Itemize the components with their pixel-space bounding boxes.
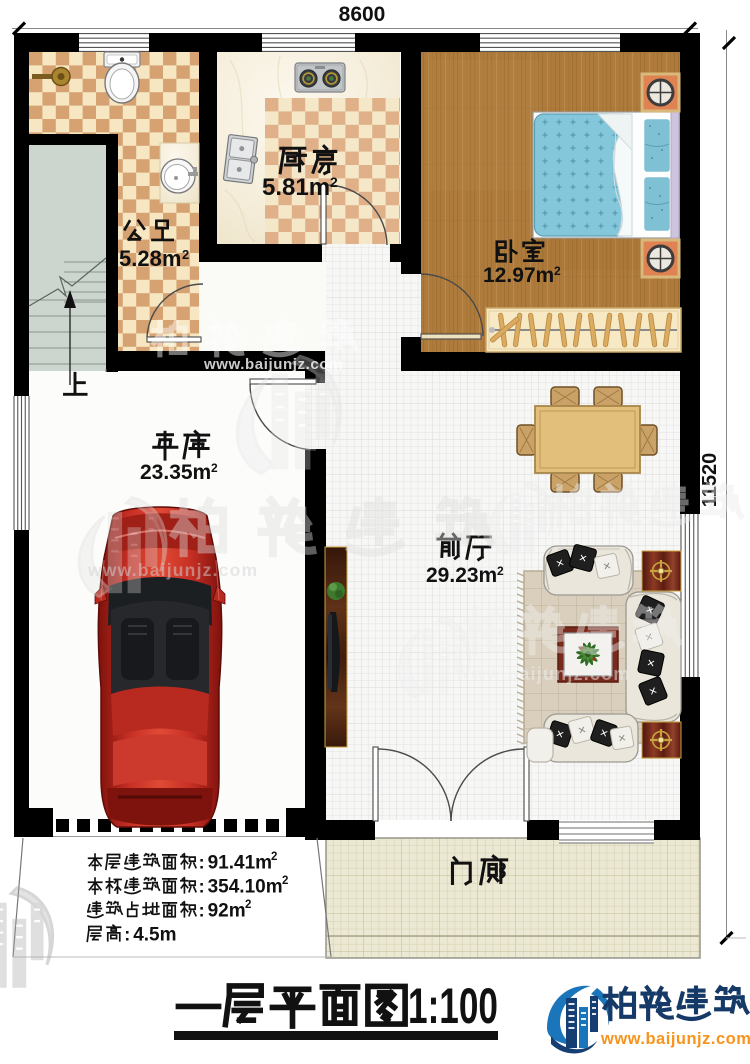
svg-text:2: 2 <box>211 461 218 475</box>
svg-text::: : <box>124 925 130 945</box>
svg-text:8600: 8600 <box>339 3 386 26</box>
svg-text:www.baijunjz.com: www.baijunjz.com <box>455 664 631 684</box>
svg-text:5.81m: 5.81m <box>262 174 330 201</box>
svg-text:5.28m: 5.28m <box>119 246 181 271</box>
svg-text:www.baijunjz.com: www.baijunjz.com <box>203 356 343 373</box>
svg-text:2: 2 <box>282 875 288 887</box>
svg-text:92m: 92m <box>208 901 246 922</box>
svg-text:www.baijunjz.com: www.baijunjz.com <box>600 1030 750 1048</box>
svg-text:2: 2 <box>182 247 189 262</box>
svg-text:354.10m: 354.10m <box>208 877 283 898</box>
svg-text::: : <box>199 853 205 873</box>
svg-text:2: 2 <box>330 174 338 190</box>
svg-text:1:100: 1:100 <box>408 978 498 1034</box>
svg-text:23.35m: 23.35m <box>140 461 211 484</box>
svg-text:2: 2 <box>497 564 504 578</box>
svg-text::: : <box>199 901 205 921</box>
svg-text:29.23m: 29.23m <box>426 564 497 587</box>
svg-text:91.41m: 91.41m <box>208 853 272 874</box>
svg-text:2: 2 <box>554 264 561 278</box>
svg-text::: : <box>199 877 205 897</box>
svg-text:www.baijunjz.com: www.baijunjz.com <box>87 560 258 580</box>
svg-text:2: 2 <box>271 851 277 863</box>
svg-text:4.5m: 4.5m <box>133 925 176 946</box>
svg-text:2: 2 <box>245 899 251 911</box>
svg-text:12.97m: 12.97m <box>483 264 554 287</box>
